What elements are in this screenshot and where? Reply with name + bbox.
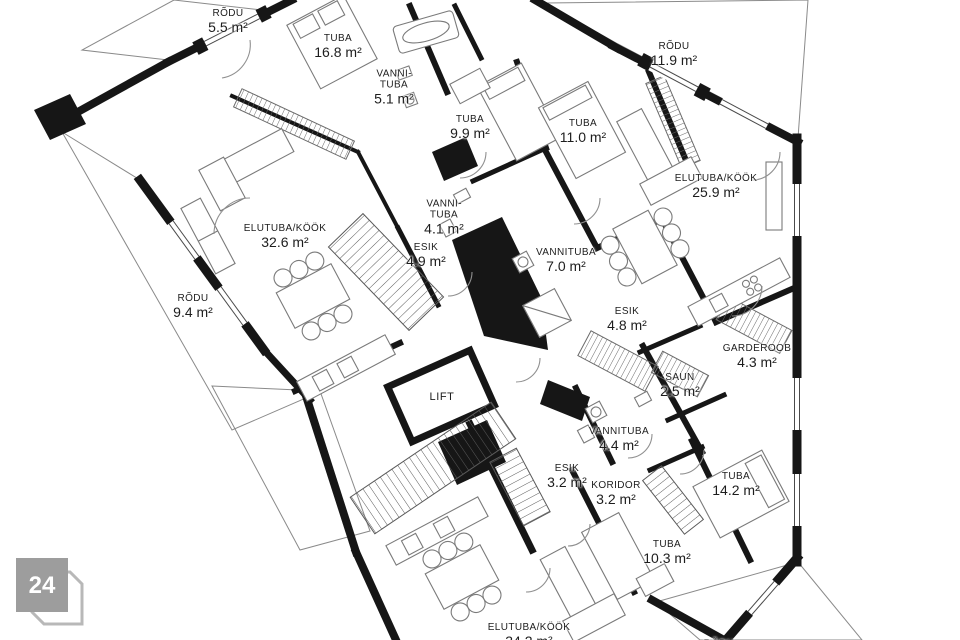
kitchen-counter xyxy=(297,335,396,401)
room-label-tuba-103: TUBA10.3 m² xyxy=(643,539,690,567)
room-area: 14.2 m² xyxy=(712,483,759,499)
room-area: 11.9 m² xyxy=(651,53,697,69)
room-label-koridor: KORIDOR3.2 m² xyxy=(591,480,640,508)
room-label-elutuba-326: ELUTUBA/KÖÖK32.6 m² xyxy=(244,223,327,251)
room-name: ELUTUBA/KÖÖK xyxy=(675,173,758,184)
floor-plan-page: 24 RÕDU5.5 m² TUBA16.8 m² VANNI­TUBA5.1 … xyxy=(0,0,960,640)
room-area: 16.8 m² xyxy=(314,45,361,61)
room-area: 4.9 m² xyxy=(406,254,446,270)
room-name: ELUTUBA/KÖÖK xyxy=(244,223,327,234)
room-label-esik-49: ESIK4.9 m² xyxy=(406,242,446,270)
window xyxy=(791,184,803,236)
room-name: RÕDU xyxy=(651,41,697,52)
room-area: 4.3 m² xyxy=(723,355,792,371)
badge-number: 24 xyxy=(29,572,56,599)
room-area: 5.5 m² xyxy=(208,20,248,36)
room-name: VANNI­TUBA xyxy=(367,68,421,90)
window xyxy=(745,579,780,617)
room-label-rodu-55: RÕDU5.5 m² xyxy=(208,8,248,36)
sink xyxy=(634,391,651,406)
room-name: SAUN xyxy=(660,372,700,383)
room-name: VANNITUBA xyxy=(589,426,649,437)
room-label-elutuba-259: ELUTUBA/KÖÖK25.9 m² xyxy=(675,173,758,201)
room-label-saun: SAUN2.5 m² xyxy=(660,372,700,400)
room-name: ESIK xyxy=(547,463,587,474)
room-name: TUBA xyxy=(560,118,606,129)
room-area: 5.1 m² xyxy=(367,92,421,108)
window xyxy=(791,378,803,430)
room-label-rodu-94: RÕDU9.4 m² xyxy=(173,293,213,321)
cabinet xyxy=(766,162,782,230)
room-name: ESIK xyxy=(406,242,446,253)
room-area: 9.4 m² xyxy=(173,305,213,321)
shaft-wall xyxy=(540,380,590,421)
room-name: TUBA xyxy=(314,33,361,44)
room-area: 4.8 m² xyxy=(607,318,647,334)
window xyxy=(214,285,250,328)
stair-run xyxy=(643,466,704,534)
window xyxy=(718,96,770,131)
room-area: 2.5 m² xyxy=(660,384,700,400)
room-name: RÕDU xyxy=(173,293,213,304)
room-name: GARDEROOB xyxy=(723,343,792,354)
room-area: 4.4 m² xyxy=(589,438,649,454)
room-area: 3.2 m² xyxy=(591,492,640,508)
room-label-rodu-119: RÕDU11.9 m² xyxy=(651,41,697,69)
room-label-garderoob: GARDEROOB4.3 m² xyxy=(723,343,792,371)
dining-table xyxy=(596,201,694,292)
room-area: 32.6 m² xyxy=(244,235,327,251)
room-label-vannituba-44: VANNITUBA4.4 m² xyxy=(589,426,649,454)
room-label-tuba-110: TUBA11.0 m² xyxy=(560,118,606,146)
room-label-tuba-168: TUBA16.8 m² xyxy=(314,33,361,61)
room-label-tuba-99: TUBA9.9 m² xyxy=(450,114,490,142)
room-name: KORIDOR xyxy=(591,480,640,491)
room-label-tuba-142: TUBA14.2 m² xyxy=(712,471,759,499)
city24-badge: 24 xyxy=(16,558,82,624)
room-label-vannituba-41: VANNI­TUBA4.1 m² xyxy=(417,198,471,237)
room-name: VANNI­TUBA xyxy=(417,198,471,220)
room-label-vannituba-70: VANNITUBA7.0 m² xyxy=(536,247,596,275)
room-name: LIFT xyxy=(429,391,454,403)
room-area: 7.0 m² xyxy=(536,259,596,275)
room-area: 25.9 m² xyxy=(675,185,758,201)
room-name: ELUTUBA/KÖÖK xyxy=(488,622,571,633)
room-label-elutuba-bottom: ELUTUBA/KÖÖK34.2 m² xyxy=(488,622,571,640)
balcony-rodu-9-4 xyxy=(62,132,306,430)
cabinet xyxy=(181,198,235,274)
room-label-esik-32: ESIK3.2 m² xyxy=(547,463,587,491)
room-name: RÕDU xyxy=(208,8,248,19)
room-area: 10.3 m² xyxy=(643,551,690,567)
floor-plan-canvas: 24 xyxy=(0,0,960,640)
room-name: TUBA xyxy=(712,471,759,482)
room-area: 9.9 m² xyxy=(450,126,490,142)
room-area: 3.2 m² xyxy=(547,475,587,491)
room-name: ESIK xyxy=(607,306,647,317)
room-name: VANNITUBA xyxy=(536,247,596,258)
room-label-lift: LIFT xyxy=(429,391,454,403)
room-area: 4.1 m² xyxy=(417,222,471,238)
shaft-wall xyxy=(432,137,478,181)
room-name: TUBA xyxy=(643,539,690,550)
room-name: TUBA xyxy=(450,114,490,125)
room-label-esik-48: ESIK4.8 m² xyxy=(607,306,647,334)
window xyxy=(791,474,803,526)
room-area: 11.0 m² xyxy=(560,130,606,146)
room-area: 34.2 m² xyxy=(488,634,571,640)
wardrobe xyxy=(578,331,658,391)
room-label-vannituba-51: VANNI­TUBA5.1 m² xyxy=(367,68,421,107)
